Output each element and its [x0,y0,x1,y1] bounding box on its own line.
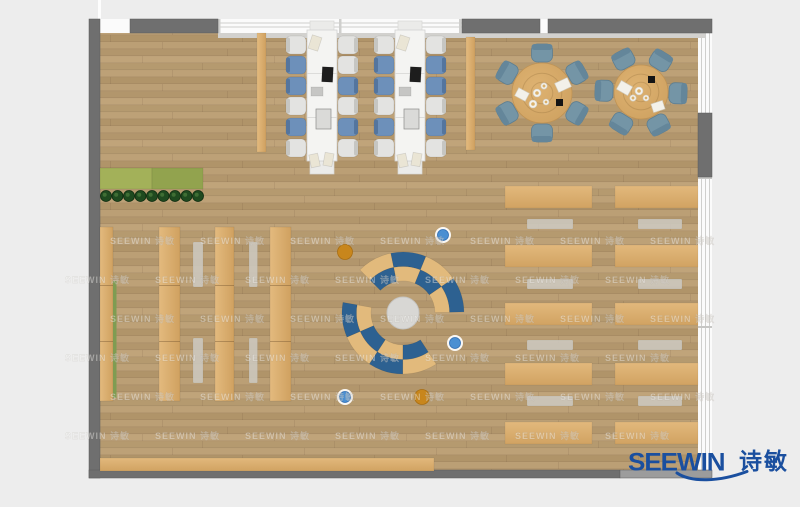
desk-chair [374,139,394,157]
desk-chair [286,36,306,54]
desk-item-laptop [410,67,422,83]
desk-chair [338,97,358,115]
shelf-seam [100,285,113,286]
chair-back [354,99,358,114]
glass-line [709,30,710,470]
desk-chair [374,97,394,115]
plant-highlight [114,193,118,197]
desk-chair [426,56,446,74]
desk-chair [426,36,446,54]
glass-line [701,30,702,470]
watermark-text: SEEWIN 诗敏 [110,235,175,246]
chair-back [286,120,290,135]
watermark-text: SEEWIN 诗敏 [515,352,580,363]
watermark-text: SEEWIN 诗敏 [335,352,400,363]
watermark-text: SEEWIN 诗敏 [110,391,175,402]
desk-chair [374,56,394,74]
floor-plan: SEEWIN 诗敏SEEWIN 诗敏SEEWIN 诗敏SEEWIN 诗敏SEEW… [0,0,800,507]
desk-chair [426,97,446,115]
watermark-text: SEEWIN 诗敏 [290,313,355,324]
desk-chair [338,118,358,136]
watermark-text: SEEWIN 诗敏 [245,352,310,363]
plant-highlight [149,193,153,197]
plant-highlight [183,193,187,197]
chair-back [286,79,290,94]
watermark-text: SEEWIN 诗敏 [245,274,310,285]
shelf-seam [215,341,234,342]
planter-box [152,168,203,189]
glass-line [705,30,706,470]
chair-back [286,38,290,53]
plant-highlight [137,193,141,197]
desk-item-laptop [322,67,334,83]
shelf-seam [159,341,180,342]
watermark-text: SEEWIN 诗敏 [650,235,715,246]
chair-back [374,99,378,114]
desk-chair [338,139,358,157]
watermark-text: SEEWIN 诗敏 [380,235,445,246]
watermark-text: SEEWIN 诗敏 [335,274,400,285]
watermark-text: SEEWIN 诗敏 [380,391,445,402]
stool-blue [450,338,461,349]
brand-logo: SEEWIN 诗敏 [628,449,789,481]
desk-chair [374,36,394,54]
desk-chair [426,77,446,95]
plate-food [535,91,539,95]
reading-desk [615,186,698,208]
chair-back [442,141,446,156]
shelf-seam [270,341,291,342]
workstation-end-cap [398,21,422,31]
reading-bench [527,219,573,229]
desk-chair [286,56,306,74]
desk-item-tablet [399,87,411,96]
watermark-text: SEEWIN 诗敏 [425,352,490,363]
top-wall-b [462,19,540,33]
chair-back [681,83,688,104]
reading-desk [615,363,698,385]
desk-item-monitor [316,109,331,129]
watermark-text: SEEWIN 诗敏 [335,430,400,441]
chair-back [595,80,602,101]
watermark-text: SEEWIN 诗敏 [425,430,490,441]
shelf-seam [100,341,113,342]
desk-chair [374,77,394,95]
bottom-bench [100,458,434,471]
chair-back [354,120,358,135]
plate-food [645,97,648,100]
chair-back [374,79,378,94]
shelf-plant-edge [113,281,117,398]
desk-chair [338,77,358,95]
left-wall [89,19,100,478]
window-mullion [339,19,342,33]
reading-desk [505,245,592,267]
watermark-text: SEEWIN 诗敏 [200,391,265,402]
watermark-text: SEEWIN 诗敏 [65,430,130,441]
watermark-text: SEEWIN 诗敏 [245,430,310,441]
watermark-text: SEEWIN 诗敏 [560,391,625,402]
chair-back [532,44,553,50]
watermark-text: SEEWIN 诗敏 [290,391,355,402]
plant-highlight [160,193,164,197]
watermark-text: SEEWIN 诗敏 [560,313,625,324]
watermark-text: SEEWIN 诗敏 [470,235,535,246]
chair-back [374,38,378,53]
reading-bench [527,340,573,350]
desk-chair [426,139,446,157]
table-chair [532,44,553,62]
plant-highlight [195,193,199,197]
watermark-text: SEEWIN 诗敏 [650,313,715,324]
stool-orange [338,245,353,260]
workstation-end-cap [310,21,334,31]
desk-chair [286,77,306,95]
chair-back [442,99,446,114]
chair-back [286,58,290,73]
window-divider [698,326,712,328]
desk-item-paper [411,152,422,166]
watermark-text: SEEWIN 诗敏 [650,391,715,402]
chair-back [374,58,378,73]
watermark-text: SEEWIN 诗敏 [65,352,130,363]
watermark-text: SEEWIN 诗敏 [605,274,670,285]
watermark-text: SEEWIN 诗敏 [200,235,265,246]
plate-food [632,97,635,100]
bookshelf-row [270,227,291,401]
top-wall-a [130,19,218,33]
plant-highlight [126,193,130,197]
shelf-seam [159,285,180,286]
plate-food [543,85,546,88]
desk-chair [374,118,394,136]
chair-back [354,141,358,156]
watermark-text: SEEWIN 诗敏 [470,391,535,402]
watermark-text: SEEWIN 诗敏 [560,235,625,246]
watermark-text: SEEWIN 诗敏 [605,352,670,363]
watermark-text: SEEWIN 诗敏 [155,352,220,363]
watermark-text: SEEWIN 诗敏 [65,274,130,285]
chair-back [286,99,290,114]
side-shelf-strip [466,37,475,150]
desk-chair [338,36,358,54]
table-tablet [556,99,563,106]
chair-back [354,58,358,73]
floor-plan-svg: SEEWIN 诗敏SEEWIN 诗敏SEEWIN 诗敏SEEWIN 诗敏SEEW… [0,0,800,507]
side-shelf-strip [257,33,266,152]
watermark-text: SEEWIN 诗敏 [380,313,445,324]
brand-swoosh-icon [675,470,749,484]
desk-chair [338,56,358,74]
watermark-text: SEEWIN 诗敏 [110,313,175,324]
plate-food [637,89,641,93]
chair-back [374,141,378,156]
window-divider [698,177,712,179]
table-chair [595,80,614,102]
chair-back [374,120,378,135]
chair-back [442,79,446,94]
reading-bench [638,219,682,229]
desk-chair [286,139,306,157]
right-wall-seg [698,113,712,177]
plate-food [545,101,548,104]
reading-desk [505,363,592,385]
shelf-seam [270,285,291,286]
reading-bench [638,340,682,350]
watermark-text: SEEWIN 诗敏 [515,430,580,441]
watermark-text: SEEWIN 诗敏 [515,274,580,285]
shelf-seam [215,285,234,286]
desk-chair [286,97,306,115]
desk-item-tablet [311,87,323,96]
chair-back [442,58,446,73]
desk-item-monitor [404,109,419,129]
plant-highlight [103,193,107,197]
chair-back [532,136,553,142]
window-mullion [218,19,221,33]
chair-back [286,141,290,156]
watermark-text: SEEWIN 诗敏 [155,274,220,285]
chair-back [354,79,358,94]
watermark-text: SEEWIN 诗敏 [155,430,220,441]
plate-food [531,102,535,106]
watermark-text: SEEWIN 诗敏 [425,274,490,285]
chair-back [354,38,358,53]
reading-desk [615,245,698,267]
chair-back [442,38,446,53]
table-chair [532,124,553,142]
desk-item-paper [323,152,334,166]
table-chair [669,82,688,104]
watermark-text: SEEWIN 诗敏 [605,430,670,441]
plant-highlight [172,193,176,197]
chair-back [442,120,446,135]
window-mullion [459,19,462,33]
watermark-text: SEEWIN 诗敏 [200,313,265,324]
watermark-text: SEEWIN 诗敏 [470,313,535,324]
top-wall-c [548,19,712,33]
planter-box [100,168,152,189]
table-tablet [648,76,655,83]
desk-chair [426,118,446,136]
desk-chair [286,118,306,136]
reading-desk [505,186,592,208]
wall-stub-line [98,0,101,19]
lounge-center-table [387,297,419,329]
watermark-text: SEEWIN 诗敏 [290,235,355,246]
